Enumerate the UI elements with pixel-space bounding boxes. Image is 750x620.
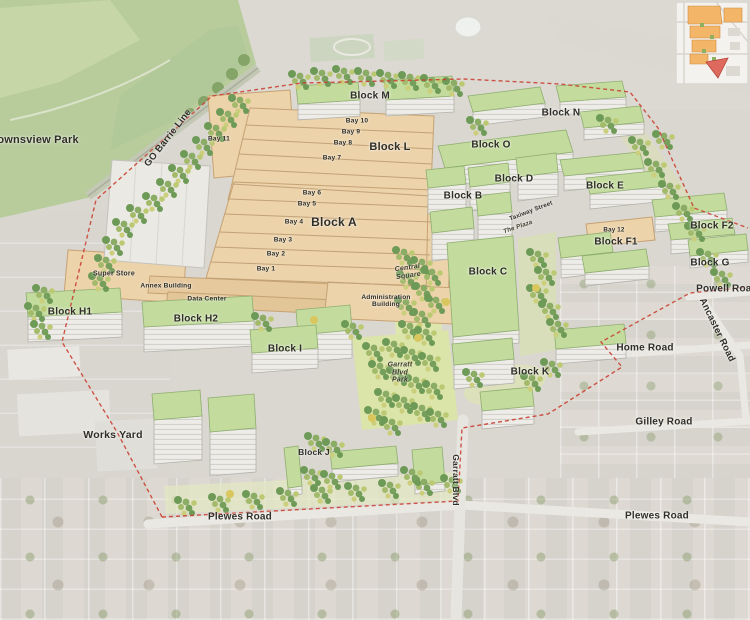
label-block-f1: Block F1	[594, 237, 637, 248]
label-bay-12: Bay 12	[603, 227, 624, 234]
label-garratt-blvd: Garratt Blvd	[451, 454, 461, 506]
label-bay-11: Bay 11	[208, 136, 230, 143]
label-powell-road: Powell Road	[696, 284, 750, 295]
label-data-center: Data Center	[187, 296, 226, 303]
label-block-b: Block B	[444, 191, 483, 202]
label-block-i: Block I	[268, 344, 302, 355]
label-works-yard: Works Yard	[83, 429, 142, 441]
label-block-e: Block E	[586, 181, 624, 192]
works-yard-buildings	[7, 346, 157, 471]
label-block-g: Block G	[690, 258, 729, 269]
location-inset-map	[676, 2, 748, 84]
label-downsview-park: Downsview Park	[0, 134, 79, 146]
label-bay-7: Bay 7	[323, 155, 342, 162]
label-administration-building: Administration Building	[357, 294, 415, 308]
label-block-l: Block L	[369, 141, 410, 153]
label-bay-10: Bay 10	[346, 118, 368, 125]
label-gilley-road: Gilley Road	[635, 417, 692, 428]
label-block-a: Block A	[311, 215, 357, 229]
label-bay-8: Bay 8	[334, 140, 353, 147]
label-block-j: Block J	[298, 447, 330, 457]
label-bay-9: Bay 9	[342, 129, 361, 136]
label-garratt-blvd-park: Garratt Blvd Park	[383, 362, 417, 385]
label-block-c: Block C	[469, 267, 508, 278]
label-bay-3: Bay 3	[274, 237, 293, 244]
label-block-h2: Block H2	[174, 314, 218, 325]
label-home-road: Home Road	[616, 343, 673, 354]
label-block-h1: Block H1	[48, 307, 92, 318]
label-block-k: Block K	[511, 367, 550, 378]
label-block-o: Block O	[471, 140, 510, 151]
label-block-d: Block D	[495, 174, 534, 185]
label-block-m: Block M	[350, 91, 390, 102]
label-block-n: Block N	[542, 108, 581, 119]
label-plewes-road-west: Plewes Road	[208, 512, 272, 523]
site-plan-rendering: Downsview Park GO Barrie Line Bay 11 Blo…	[0, 0, 750, 620]
label-bay-5: Bay 5	[298, 201, 317, 208]
label-block-f2: Block F2	[690, 221, 733, 232]
label-bay-4: Bay 4	[285, 219, 304, 226]
label-bay-6: Bay 6	[303, 190, 322, 197]
label-annex-building: Annex Building	[140, 283, 191, 290]
label-bay-2: Bay 2	[267, 251, 286, 258]
label-plewes-road-east: Plewes Road	[625, 511, 689, 522]
label-bay-1: Bay 1	[257, 266, 276, 273]
label-super-store: Super Store	[93, 271, 135, 278]
